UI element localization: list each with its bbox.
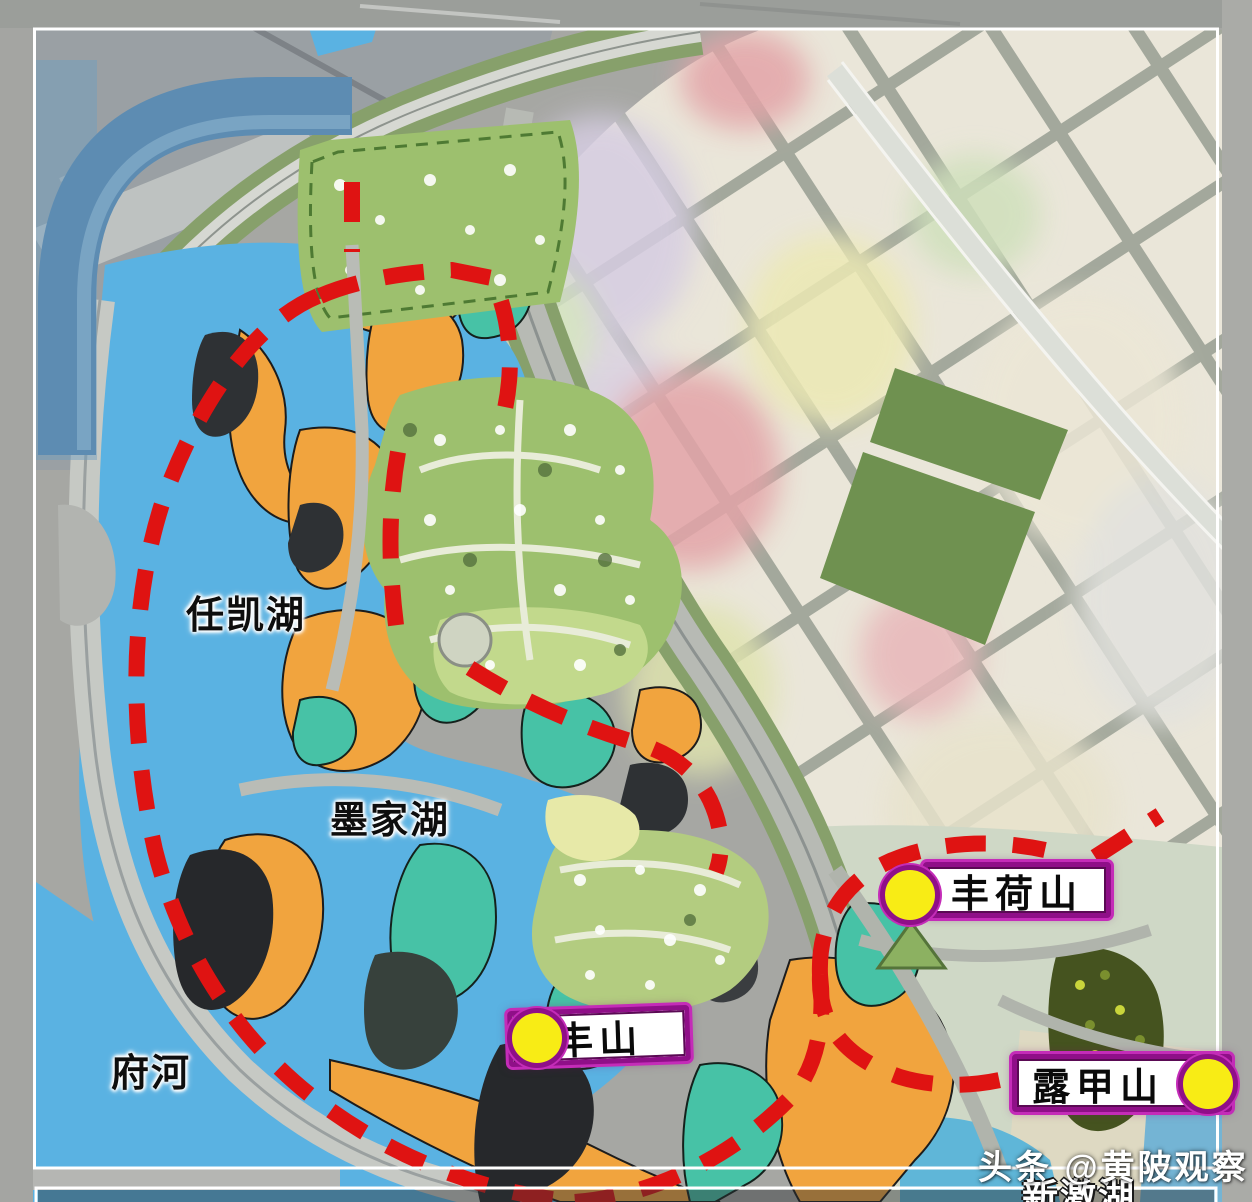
watermark-text: 头条 @黄陂观察 xyxy=(978,1140,1249,1189)
fenghe-mountain-marker: 丰荷山 xyxy=(923,862,1111,918)
renkai-lake-label: 任凯湖 xyxy=(186,584,306,639)
fenghe-mountain-label: 丰荷山 xyxy=(951,863,1083,918)
lujia-mountain-dot-icon xyxy=(1178,1054,1238,1114)
lujia-mountain-label: 露甲山 xyxy=(1032,1056,1164,1111)
mojia-lake-label: 墨家湖 xyxy=(330,789,450,844)
feng-mountain-label: 丰山 xyxy=(554,1007,644,1065)
planning-map-screenshot: 任凯湖 墨家湖 府河 新激湖 头条 @黄陂观察 丰荷山 丰山 露甲山 xyxy=(0,0,1252,1202)
fenghe-mountain-dot-icon xyxy=(880,865,940,925)
feng-mountain-dot-icon xyxy=(507,1008,567,1068)
fu-river-label: 府河 xyxy=(111,1042,191,1097)
